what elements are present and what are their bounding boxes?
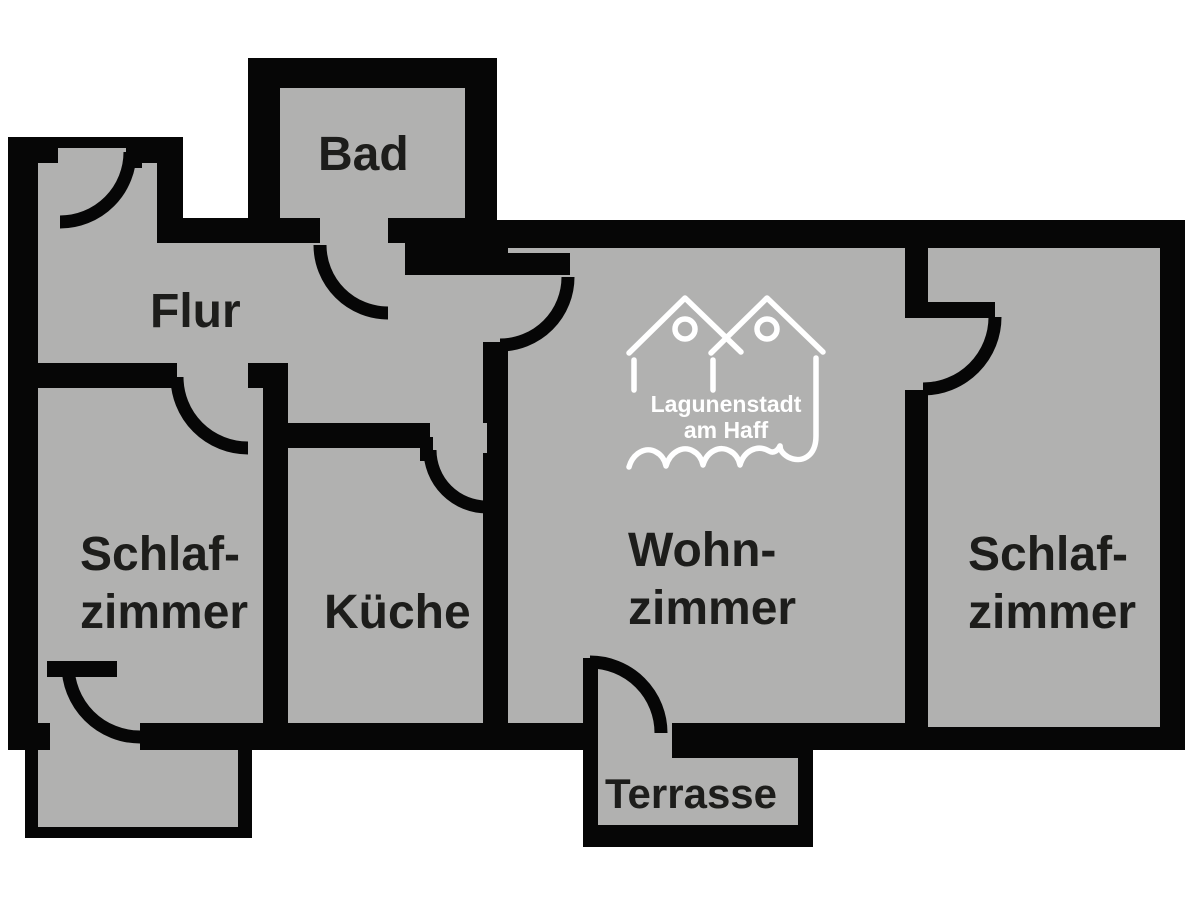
floor-areas <box>38 88 1160 827</box>
room-floor-schlafzimmer-rechts <box>928 248 1160 727</box>
door-opening-kueche <box>430 423 487 453</box>
room-label-schlafzimmer-rechts-line1: Schlaf- <box>968 528 1128 581</box>
door-leaf-schlafzimmer-rechts <box>905 302 995 318</box>
room-label-schlafzimmer-links-line2: zimmer <box>80 586 248 639</box>
door-leaf-terrasse <box>583 658 598 735</box>
room-label-wohnzimmer-line1: Wohn- <box>628 524 776 577</box>
room-label-bad: Bad <box>318 128 409 181</box>
floor-plan-canvas: Bad Flur Schlaf- zimmer Küche Wohn- zimm… <box>0 0 1200 900</box>
door-opening-bad <box>320 218 388 246</box>
door-opening-wohnzimmer <box>483 275 508 342</box>
door-leaf-balkon <box>47 661 117 677</box>
room-floor-flur-mid <box>263 243 288 363</box>
floor-plan-page: Bad Flur Schlaf- zimmer Küche Wohn- zimm… <box>0 0 1200 900</box>
room-label-terrasse: Terrasse <box>605 770 777 817</box>
wall-step-flur <box>405 243 508 275</box>
door-opening-schlafzimmer-rechts <box>905 317 928 390</box>
room-label-schlafzimmer-links-line1: Schlaf- <box>80 528 240 581</box>
room-floor-entry <box>38 163 157 363</box>
room-floor-balkon <box>38 750 238 827</box>
logo-text-line2: am Haff <box>684 417 769 443</box>
room-label-flur: Flur <box>150 285 241 338</box>
room-label-wohnzimmer-line2: zimmer <box>628 582 796 635</box>
room-floor-flur-southeast <box>405 273 483 423</box>
logo-text-line1: Lagunenstadt <box>651 391 802 417</box>
room-label-kueche: Küche <box>324 586 471 639</box>
room-label-schlafzimmer-rechts-line2: zimmer <box>968 586 1136 639</box>
room-floor-flur-east <box>288 243 405 423</box>
door-opening-entrance <box>58 148 130 168</box>
door-opening-schlafzimmer-links <box>177 363 248 393</box>
door-leaf-wohnzimmer <box>508 253 570 275</box>
